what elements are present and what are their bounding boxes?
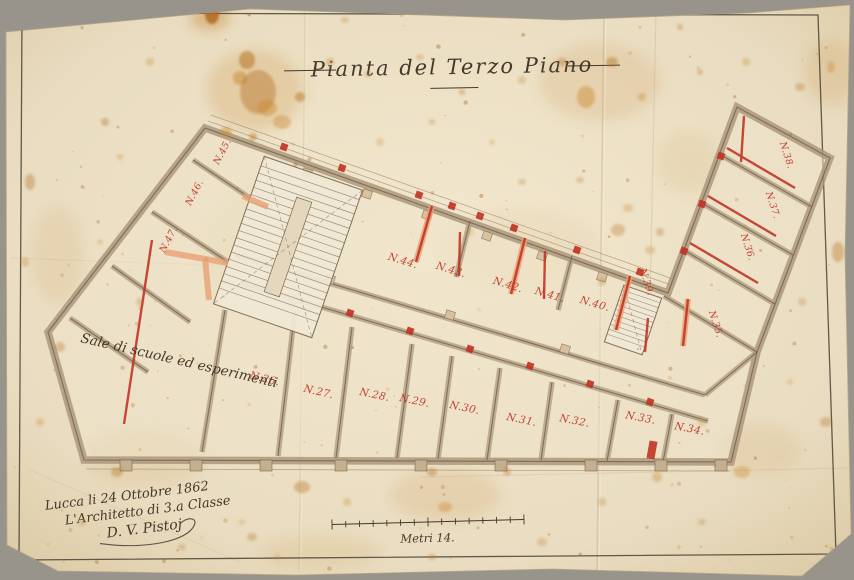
stain bbox=[742, 58, 750, 66]
buttress bbox=[190, 460, 202, 471]
speckle bbox=[81, 185, 84, 188]
speckle bbox=[626, 178, 630, 182]
speckle bbox=[788, 507, 790, 509]
speckle bbox=[157, 370, 159, 372]
speckle bbox=[628, 51, 632, 55]
stain bbox=[598, 498, 606, 506]
stain bbox=[274, 554, 280, 560]
stain bbox=[428, 554, 436, 560]
speckle bbox=[785, 479, 786, 480]
speckle bbox=[419, 527, 422, 530]
speckle bbox=[443, 493, 446, 496]
speckle bbox=[828, 264, 829, 265]
speckle bbox=[222, 295, 225, 298]
speckle bbox=[664, 183, 666, 185]
speckle bbox=[131, 403, 135, 407]
stain bbox=[697, 69, 703, 75]
speckle bbox=[222, 399, 224, 401]
speckle bbox=[393, 395, 395, 397]
speckle bbox=[645, 526, 648, 529]
stain bbox=[652, 472, 662, 482]
stain bbox=[273, 115, 291, 129]
speckle bbox=[181, 233, 184, 236]
speckle bbox=[223, 239, 226, 242]
speckle bbox=[320, 444, 323, 447]
speckle bbox=[121, 253, 124, 256]
speckle bbox=[149, 325, 151, 327]
speckle bbox=[754, 456, 758, 460]
speckle bbox=[670, 483, 674, 487]
stain bbox=[376, 138, 384, 146]
speckle bbox=[801, 59, 803, 61]
speckle bbox=[728, 559, 731, 562]
stain bbox=[136, 298, 144, 306]
speckle bbox=[743, 225, 747, 229]
stain bbox=[518, 179, 526, 185]
speckle bbox=[262, 467, 265, 470]
speckle bbox=[138, 307, 142, 311]
speckle bbox=[733, 95, 736, 98]
speckle bbox=[790, 535, 794, 539]
speckle bbox=[735, 198, 739, 202]
speckle bbox=[154, 301, 156, 303]
speckle bbox=[677, 482, 681, 486]
stain bbox=[489, 139, 495, 145]
stain bbox=[239, 51, 255, 69]
speckle bbox=[293, 162, 298, 167]
speckle bbox=[639, 26, 642, 29]
speckle bbox=[404, 25, 406, 27]
speckle bbox=[637, 348, 640, 351]
speckle bbox=[581, 135, 584, 138]
stain bbox=[247, 533, 257, 541]
speckle bbox=[410, 232, 411, 233]
speckle bbox=[376, 452, 378, 454]
stain bbox=[557, 58, 567, 66]
speckle bbox=[683, 337, 685, 339]
speckle bbox=[97, 534, 99, 536]
stain bbox=[832, 242, 844, 262]
speckle bbox=[753, 161, 755, 163]
speckle bbox=[323, 345, 327, 349]
speckle bbox=[804, 449, 807, 452]
speckle bbox=[130, 523, 133, 526]
speckle bbox=[479, 194, 483, 198]
speckle bbox=[710, 283, 713, 286]
speckle bbox=[718, 289, 719, 290]
speckle bbox=[67, 264, 70, 267]
speckle bbox=[436, 44, 441, 49]
speckle bbox=[825, 46, 828, 49]
stain bbox=[343, 498, 351, 506]
speckle bbox=[463, 100, 467, 104]
speckle bbox=[733, 468, 735, 470]
speckle bbox=[166, 397, 168, 399]
speckle bbox=[142, 356, 144, 358]
stain bbox=[294, 481, 310, 493]
stain bbox=[466, 228, 474, 236]
stain bbox=[178, 544, 186, 550]
speckle bbox=[608, 235, 611, 238]
blotch bbox=[33, 207, 83, 303]
stain bbox=[249, 133, 257, 141]
speckle bbox=[223, 518, 227, 522]
speckle bbox=[420, 486, 423, 489]
speckle bbox=[430, 191, 434, 195]
speckle bbox=[80, 26, 83, 29]
speckle bbox=[677, 545, 681, 549]
speckle bbox=[62, 560, 64, 562]
stain bbox=[518, 76, 526, 84]
speckle bbox=[762, 364, 765, 367]
speckle bbox=[370, 308, 372, 310]
speckle bbox=[478, 368, 481, 371]
stain bbox=[365, 71, 371, 77]
speckle bbox=[689, 56, 691, 58]
speckle bbox=[236, 187, 239, 190]
speckle bbox=[96, 220, 100, 224]
stain bbox=[656, 228, 664, 236]
speckle bbox=[505, 199, 507, 201]
speckle bbox=[53, 369, 56, 372]
stain bbox=[503, 468, 511, 476]
stain bbox=[787, 379, 793, 385]
stain bbox=[734, 466, 750, 478]
stain bbox=[820, 417, 832, 427]
stain bbox=[146, 58, 154, 66]
speckle bbox=[395, 406, 397, 408]
speckle bbox=[179, 354, 182, 357]
stain bbox=[36, 418, 44, 426]
stain bbox=[645, 246, 655, 254]
speckle bbox=[678, 442, 680, 444]
speckle bbox=[176, 549, 179, 552]
speckle bbox=[63, 311, 64, 312]
plan-sheet-svg: Pianta del Terzo Piano bbox=[0, 0, 854, 580]
speckle bbox=[726, 83, 729, 86]
stain bbox=[537, 538, 547, 546]
speckle bbox=[135, 322, 139, 326]
speckle bbox=[362, 221, 364, 223]
speckle bbox=[476, 526, 479, 529]
stain bbox=[257, 100, 277, 116]
stain bbox=[25, 174, 35, 190]
speckle bbox=[303, 223, 306, 226]
speckle bbox=[211, 103, 212, 104]
speckle bbox=[200, 536, 204, 540]
speckle bbox=[386, 387, 390, 391]
speckle bbox=[477, 307, 481, 311]
speckle bbox=[668, 376, 672, 380]
speckle bbox=[271, 473, 274, 476]
buttress bbox=[655, 460, 667, 471]
stain bbox=[697, 418, 707, 426]
speckle bbox=[751, 249, 753, 251]
speckle bbox=[743, 385, 745, 387]
speckle bbox=[72, 151, 73, 152]
speckle bbox=[46, 543, 49, 546]
stain bbox=[611, 224, 625, 236]
stain bbox=[438, 502, 452, 512]
stain bbox=[78, 518, 86, 526]
speckle bbox=[196, 362, 198, 364]
speckle bbox=[106, 283, 108, 285]
speckle bbox=[556, 237, 558, 239]
stain bbox=[698, 519, 706, 525]
speckle bbox=[14, 467, 15, 468]
speckle bbox=[254, 365, 258, 369]
stain bbox=[295, 92, 305, 102]
speckle bbox=[759, 249, 762, 252]
speckle bbox=[549, 231, 552, 234]
stain bbox=[827, 61, 835, 73]
page-title: Pianta del Terzo Piano bbox=[310, 53, 594, 82]
blotch bbox=[260, 536, 380, 568]
stain bbox=[677, 24, 683, 30]
speckle bbox=[177, 528, 179, 530]
speckle bbox=[816, 53, 818, 55]
speckle bbox=[129, 269, 130, 270]
speckle bbox=[647, 277, 649, 279]
speckle bbox=[628, 384, 631, 387]
stain bbox=[97, 239, 103, 245]
stain bbox=[623, 204, 633, 212]
speckle bbox=[445, 115, 447, 117]
speckle bbox=[714, 465, 717, 468]
speckle bbox=[785, 142, 787, 144]
stain bbox=[606, 57, 618, 67]
stain bbox=[576, 177, 584, 183]
speckle bbox=[120, 366, 124, 370]
stain bbox=[117, 154, 123, 160]
stain bbox=[577, 86, 595, 108]
speckle bbox=[792, 342, 796, 346]
speckle bbox=[789, 133, 792, 136]
stain bbox=[239, 519, 245, 525]
stain bbox=[459, 89, 465, 95]
buttress bbox=[335, 460, 347, 471]
stain bbox=[598, 278, 606, 286]
stain bbox=[341, 17, 349, 23]
speckle bbox=[506, 208, 508, 210]
speckle bbox=[138, 448, 141, 451]
speckle bbox=[539, 63, 541, 65]
speckle bbox=[351, 346, 354, 349]
speckle bbox=[439, 162, 441, 164]
speckle bbox=[291, 142, 296, 147]
stain bbox=[416, 54, 424, 60]
stain bbox=[55, 342, 65, 352]
stain bbox=[326, 58, 334, 66]
speckle bbox=[224, 39, 227, 42]
buttress bbox=[715, 460, 727, 471]
speckle bbox=[700, 546, 702, 548]
speckle bbox=[706, 429, 710, 433]
stain bbox=[111, 467, 123, 477]
speckle bbox=[300, 298, 302, 300]
speckle bbox=[668, 322, 670, 324]
speckle bbox=[162, 559, 166, 563]
speckle bbox=[789, 309, 792, 312]
speckle bbox=[593, 191, 594, 192]
speckle bbox=[128, 324, 130, 326]
stain bbox=[429, 119, 435, 125]
stain bbox=[101, 118, 109, 126]
speckle bbox=[56, 179, 58, 181]
speckle bbox=[449, 555, 453, 559]
speckle bbox=[375, 410, 377, 412]
speckle bbox=[697, 66, 700, 69]
speckle bbox=[327, 566, 332, 571]
buttress bbox=[260, 460, 272, 471]
speckle bbox=[441, 485, 445, 489]
speckle bbox=[188, 428, 190, 430]
speckle bbox=[247, 403, 251, 407]
stain bbox=[795, 83, 805, 91]
speckle bbox=[548, 533, 551, 536]
speckle bbox=[521, 33, 525, 37]
stain bbox=[798, 298, 806, 306]
scanned-floor-plan-photo: Pianta del Terzo Piano bbox=[0, 0, 854, 580]
stain bbox=[427, 468, 437, 476]
speckle bbox=[307, 157, 311, 161]
speckle bbox=[102, 194, 104, 196]
stain bbox=[21, 257, 29, 267]
speckle bbox=[825, 545, 828, 548]
speckle bbox=[152, 46, 155, 49]
speckle bbox=[582, 169, 585, 172]
speckle bbox=[170, 129, 174, 133]
speckle bbox=[60, 273, 64, 277]
scale-label: Metri 14. bbox=[399, 530, 455, 545]
speckle bbox=[117, 126, 120, 129]
speckle bbox=[578, 552, 582, 556]
speckle bbox=[69, 528, 73, 532]
speckle bbox=[204, 258, 208, 262]
buttress bbox=[415, 460, 427, 471]
speckle bbox=[599, 407, 600, 408]
stain bbox=[220, 127, 232, 137]
speckle bbox=[346, 351, 347, 352]
speckle bbox=[247, 13, 251, 17]
speckle bbox=[80, 165, 83, 168]
stain bbox=[638, 93, 646, 101]
speckle bbox=[303, 441, 305, 443]
buttress bbox=[585, 460, 597, 471]
speckle bbox=[95, 560, 99, 564]
speckle bbox=[61, 509, 63, 511]
speckle bbox=[668, 367, 672, 371]
speckle bbox=[563, 384, 566, 387]
